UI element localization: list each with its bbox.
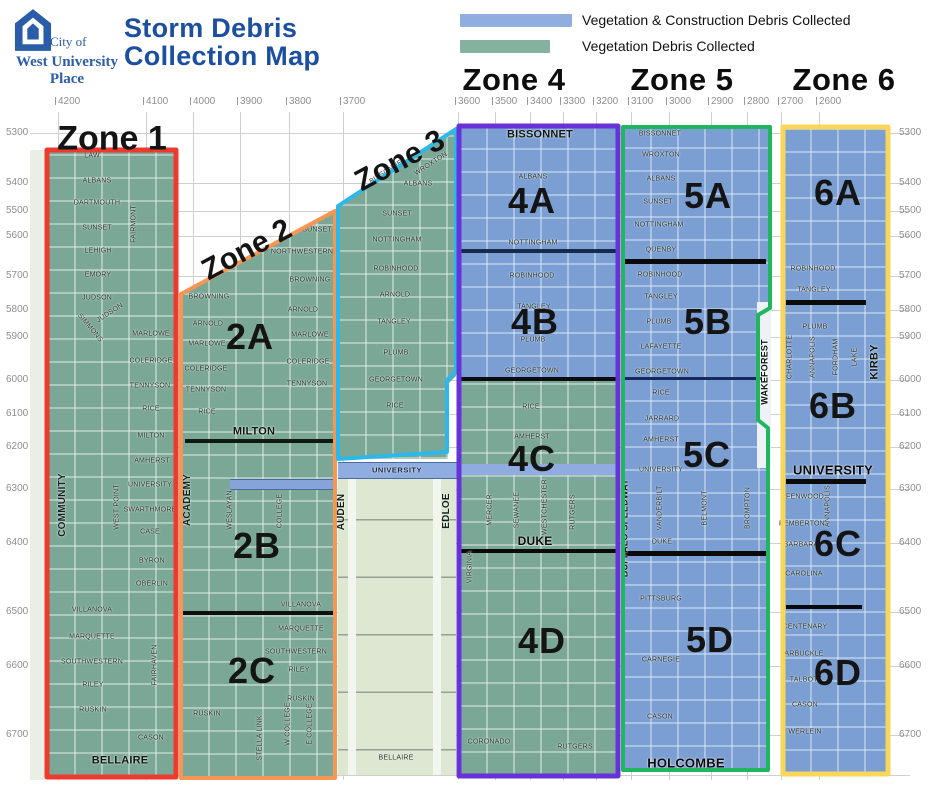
axis-label-left-5500: 5500 [6,205,28,216]
legend: Vegetation & Construction Debris Collect… [460,10,850,62]
street-label-auden: AUDEN [337,494,347,531]
street-label-riley: RILEY [288,667,309,674]
street-label-coleridge: COLERIDGE [129,358,172,365]
subzone-label-z2c: 2C [228,653,276,689]
street-label-tennyson: TENNYSON [287,381,328,388]
legend-label-blue: Vegetation & Construction Debris Collect… [582,12,850,28]
street-label-amherst: AMHERST [643,437,679,444]
boundary-line-duke-z4 [459,549,617,553]
street-label-bissonnet: BISSONNET [639,131,681,138]
street-label-carolina: CAROLINA [785,571,822,578]
subzone-label-z4a: 4A [508,183,556,219]
street-label-rice: RICE [386,403,404,410]
axis-label-left-5300: 5300 [6,127,28,138]
street-label-bellaire: BELLAIRE [378,755,413,762]
zone4-heading: Zone 4 [452,62,576,98]
subzone-label-z6b: 6B [809,388,857,424]
axis-label-left-5700: 5700 [6,270,28,281]
axis-label-left-6400: 6400 [6,537,28,548]
street-label-tangley: TANGLEY [644,294,678,301]
street-label-annapolis: ANNAPOLIS [810,336,817,378]
page-title-line1: Storm Debris [124,14,320,42]
street-label-villanova: VILLANOVA [72,607,112,614]
street-label-rice: RICE [522,404,540,411]
street-label-tennyson: TENNYSON [130,383,171,390]
axis-label-left-5400: 5400 [6,177,28,188]
street-label-fenwood: FENWOOD [786,494,824,501]
street-label-arnold: ARNOLD [193,321,223,328]
street-label-nottingham: NOTTINGHAM [372,237,421,244]
subzone-label-z4b: 4B [511,304,559,340]
axis-label-left-6000: 6000 [6,374,28,385]
street-label-nottingham: NOTTINGHAM [508,240,557,247]
subzone-label-z5b: 5B [684,304,732,340]
left-margin-strip [30,150,46,780]
street-label-cason: CASON [792,702,818,709]
street-label-dartmouth: DARTMOUTH [74,200,120,207]
axis-label-left-5600: 5600 [6,230,28,241]
university-band-zone2 [230,479,336,490]
boundary-line-nottingham [461,249,617,253]
street-label-centenary: CENTENARY [783,624,828,631]
street-label-coleridge: COLERIDGE [286,359,329,366]
street-label-byron: BYRON [139,558,165,565]
street-label-college: COLLEGE [277,494,284,528]
street-label-villanova: VILLANOVA [281,602,321,609]
axis-label-left-6100: 6100 [6,408,28,419]
street-label-albans: ALBANS [83,178,112,185]
street-label-milton: MILTON [138,433,165,440]
zone1-map-label: Zone 1 [57,120,167,159]
street-label-judson: JUDSON [82,295,112,302]
street-label-quenby: QUENBY [646,247,677,254]
street-label-tennyson: TENNYSON [186,387,227,394]
axis-label-right-5600: 5600 [899,230,921,241]
street-label-carnegie: CARNEGIE [642,657,680,664]
boundary-line-quenby [625,259,766,264]
axis-label-right-5700: 5700 [899,270,921,281]
street-label-riley: RILEY [82,682,103,689]
logo-text-city-of: City of [50,34,86,50]
subzone-label-z4d: 4D [518,623,566,659]
street-label-sunset: SUNSET [82,225,112,232]
street-label-ruskin: RUSKIN [79,707,107,714]
street-label-tangley: TANGLEY [377,319,411,326]
street-label-nottingham: NOTTINGHAM [634,222,683,229]
subzone-label-z5c: 5C [683,437,731,473]
city-logo-house-icon [14,8,52,52]
street-label-ruskin: RUSKIN [193,711,221,718]
city-logo: City of West University Place [8,6,126,98]
street-label-albans: ALBANS [647,176,676,183]
axis-label-right-5400: 5400 [899,177,921,188]
axis-label-left-6700: 6700 [6,729,28,740]
street-label-robinhood: ROBINHOOD [638,272,683,279]
street-label-fairmont: FAIRMONT [131,205,138,243]
street-label-lafayette: LAFAYETTE [641,344,682,351]
street-label-southwestern: SOUTHWESTERN [61,659,123,666]
page-title-line2: Collection Map [124,42,320,70]
axis-label-top-3800: 3800 [286,96,311,107]
axis-label-right-6400: 6400 [899,537,921,548]
street-label-wakeforest: WAKEFOREST [761,339,770,405]
street-label-georgetown: GEORGETOWN [505,368,559,375]
axis-label-right-6700: 6700 [899,729,921,740]
boundary-line-milton [185,439,333,443]
axis-label-right-5900: 5900 [899,331,921,342]
axis-label-right-6600: 6600 [899,660,921,671]
axis-label-top-3700: 3700 [340,96,365,107]
street-label-sunset: SUNSET [643,199,673,206]
boundary-line-tangley-z6 [786,300,866,305]
street-label-sunset: SUNSET [382,211,412,218]
street-label-university: UNIVERSITY [128,482,172,489]
street-label-university: UNIVERSITY [793,464,873,477]
subzone-label-z4c: 4C [508,441,556,477]
axis-label-right-6300: 6300 [899,483,921,494]
street-label-sunset: SUNSET [302,227,332,234]
axis-label-right-6100: 6100 [899,408,921,419]
street-label-swarthmore: SWARTHMORE [124,507,177,514]
boundary-line-georgetown-z4 [461,377,617,381]
street-label-bissonnet: BISSONNET [507,130,573,141]
street-label-mercer: MERCER [487,494,494,526]
street-label-edloe: EDLOE [442,493,452,528]
street-label-wroxton: WROXTON [642,152,680,159]
axis-label-left-6500: 6500 [6,606,28,617]
zone5-heading: Zone 5 [620,62,744,98]
street-label-university: UNIVERSITY [372,466,422,474]
street-label-fordham: FORDHAM [833,339,840,376]
street-label-west-point: WEST POINT [114,484,121,529]
street-label-robinhood: ROBINHOOD [374,266,419,273]
axis-label-right-5800: 5800 [899,304,921,315]
street-label-coleridge: COLERIDGE [184,366,227,373]
street-label-stella-link: STELLA LINK [257,715,264,760]
axis-label-right-6200: 6200 [899,441,921,452]
axis-label-left-6300: 6300 [6,483,28,494]
street-label-plumb: PLUMB [646,319,671,326]
street-label-oberlin: OBERLIN [136,581,168,588]
legend-swatch-green [460,40,550,53]
street-label-albans: ALBANS [404,181,433,188]
street-label-pittsburg: PITTSBURG [640,596,682,603]
street-label-cason: CASON [647,714,673,721]
boundary-line-villanova [183,611,334,615]
street-label-cason: CASON [138,735,164,742]
street-label-rutgers: RUTGERS [557,744,593,751]
axis-label-top-3200: 3200 [593,96,618,107]
zone6-heading: Zone 6 [782,62,906,98]
axis-label-right-5500: 5500 [899,205,921,216]
axis-label-left-6600: 6600 [6,660,28,671]
street-label-buffalo-speedway: BUFFALO SPEEDWAY [621,479,630,577]
street-label-virginia: VIRGINIA [467,551,474,583]
gridline-v [781,112,782,780]
subzone-label-z5a: 5A [684,178,732,214]
street-label-robinhood: ROBINHOOD [791,266,836,273]
street-label-milton: MILTON [233,427,275,438]
street-label-arnold: ARNOLD [380,292,410,299]
boundary-line-centenary-z6 [786,605,862,609]
street-label-community: COMMUNITY [58,473,68,536]
page-title: Storm Debris Collection Map [124,14,320,71]
subzone-label-z6a: 6A [814,175,862,211]
street-label-browning: BROWNING [290,277,331,284]
street-label-fairhaven: FAIRHAVEN [152,645,159,686]
street-label-robinhood: ROBINHOOD [510,273,555,280]
street-label-westchester: WESTCHESTER [542,479,549,535]
boundary-line-duke-z5 [623,551,768,556]
street-label-lehigh: LEHIGH [84,248,111,255]
axis-label-right-5300: 5300 [899,127,921,138]
street-label-rice: RICE [198,409,216,416]
street-label-rice: RICE [142,406,160,413]
street-label-belmont: BELMONT [702,490,709,525]
boundary-line-georgetown-z5 [625,377,762,380]
street-label-annapolis: ANNAPOLIS [825,485,832,527]
street-label-brompton: BROMPTON [745,487,752,529]
street-label-marquette: MARQUETTE [69,634,115,641]
street-label-emory: EMORY [85,272,112,279]
street-label-rice: RICE [652,390,670,397]
street-label-marlowe: MARLOWE [188,341,226,348]
street-label-bellaire: BELLAIRE [92,756,149,767]
axis-label-left-5900: 5900 [6,331,28,342]
axis-label-top-2800: 2800 [744,96,769,107]
axis-label-left-6200: 6200 [6,441,28,452]
street-label-duke: DUKE [518,535,553,547]
street-label-rutgers: RUTGERS [570,494,577,530]
legend-label-green: Vegetation Debris Collected [582,38,755,54]
subzone-label-z6c: 6C [814,526,862,562]
strip-street-band [348,463,356,775]
street-label-w-college: W COLLEGE [285,702,292,745]
subzone-label-z6d: 6D [814,655,862,691]
street-label-browning: BROWNING [189,294,230,301]
axis-label-right-6000: 6000 [899,374,921,385]
legend-swatch-blue [460,14,572,27]
subzone-label-z5d: 5D [686,622,734,658]
strip-street-band [433,463,441,775]
axis-label-right-6500: 6500 [899,606,921,617]
street-label-werlein: WERLEIN [788,729,821,736]
street-label-georgetown: GEORGETOWN [369,377,423,384]
axis-label-top-4000: 4000 [190,96,215,107]
legend-row-blue: Vegetation & Construction Debris Collect… [460,10,850,30]
axis-label-left-5800: 5800 [6,304,28,315]
street-label-holcombe: HOLCOMBE [647,757,724,770]
street-label-tangley: TANGLEY [797,287,831,294]
street-label-weslayan: WESLAYAN [227,490,234,529]
subzone-label-z2b: 2B [233,528,281,564]
street-label-university: UNIVERSITY [639,467,683,474]
logo-text-place: Place [8,71,126,88]
street-label-arnold: ARNOLD [288,307,318,314]
axis-label-top-3900: 3900 [237,96,262,107]
storm-debris-collection-map: City of West University Place Storm Debr… [0,0,940,788]
street-label-e-college: E COLLEGE [307,703,314,744]
street-label-marlowe: MARLOWE [291,332,329,339]
street-label-coronado: CORONADO [468,739,511,746]
street-label-amherst: AMHERST [134,458,170,465]
street-label-plumb: PLUMB [383,350,408,357]
street-label-marlowe: MARLOWE [132,331,170,338]
street-label-duke: DUKE [652,539,672,546]
logo-text-west-university: West University [8,54,126,71]
street-label-marquette: MARQUETTE [278,626,324,633]
street-label-case: CASE [140,529,160,536]
street-label-plumb: PLUMB [802,324,827,331]
boundary-line-university-z6 [786,479,866,484]
street-label-charlotte: CHARLOTTE [787,335,794,379]
street-label-kirby: KIRBY [870,344,881,379]
subzone-label-z2a: 2A [226,319,274,355]
street-label-vanderbilt: VANDERBILT [657,486,664,531]
legend-row-green: Vegetation Debris Collected [460,36,850,56]
street-label-academy: ACADEMY [183,474,193,526]
street-label-lake: LAKE [852,348,859,367]
street-label-jarrard: JARRARD [645,416,679,423]
street-label-georgetown: GEORGETOWN [635,369,689,376]
street-label-sewanee: SEWANEE [514,492,521,528]
axis-label-top-4100: 4100 [143,96,168,107]
